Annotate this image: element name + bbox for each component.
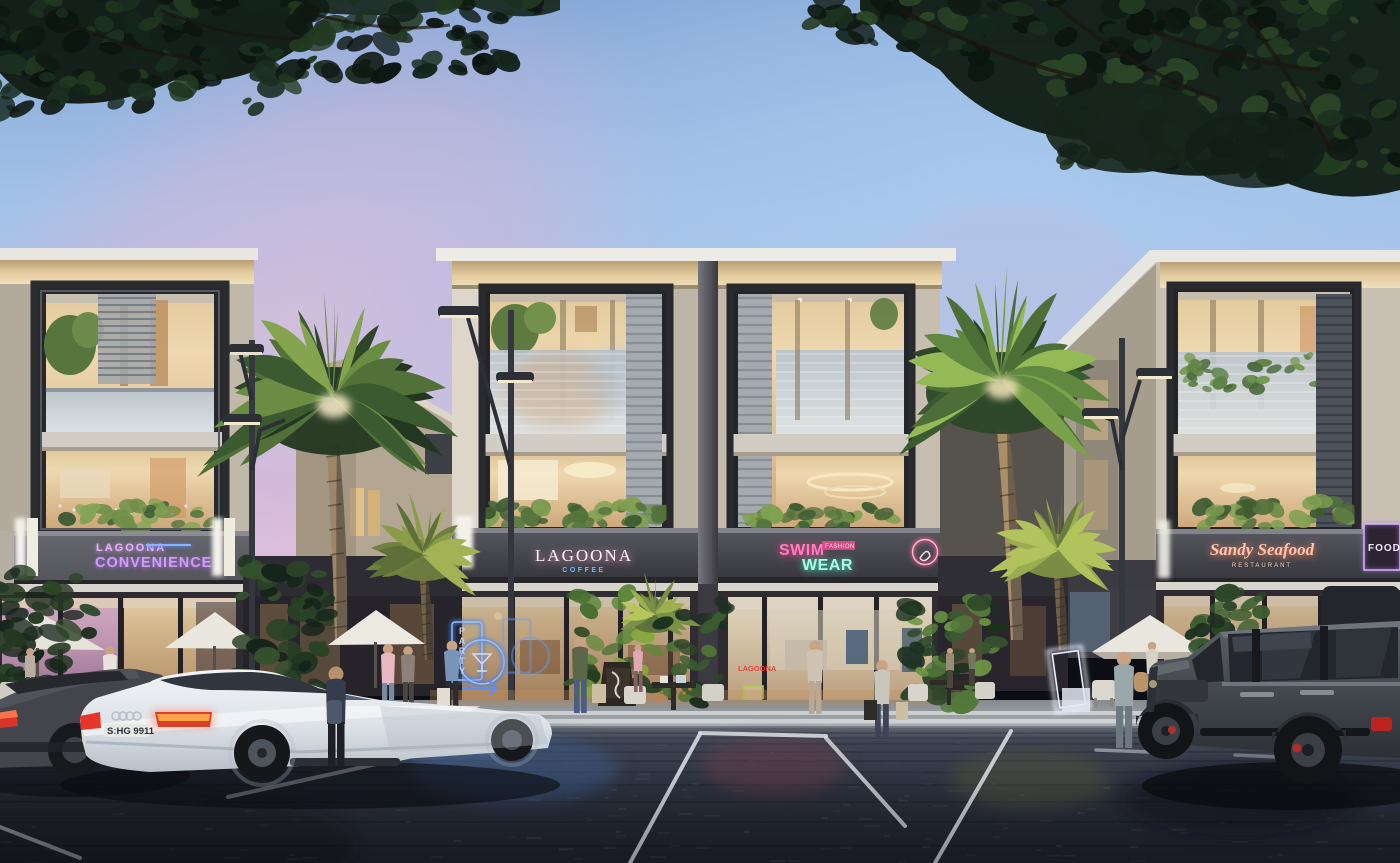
svg-text:FASHION: FASHION — [825, 544, 855, 550]
svg-text:Y: Y — [459, 666, 465, 676]
svg-text:S:HG 9911: S:HG 9911 — [107, 726, 155, 737]
svg-text:P: P — [459, 626, 465, 636]
svg-text:T: T — [459, 656, 465, 666]
svg-text:FOOD: FOOD — [1368, 543, 1400, 554]
svg-text:LAGOONA: LAGOONA — [96, 542, 166, 554]
svg-text:WEAR: WEAR — [802, 557, 853, 574]
svg-text:RESTAURANT: RESTAURANT — [1232, 563, 1292, 569]
svg-text:CONVENIENCE: CONVENIENCE — [95, 555, 212, 571]
svg-text:Sandy Seafood: Sandy Seafood — [1210, 540, 1315, 559]
svg-text:A: A — [459, 636, 466, 646]
svg-text:LAGOONA: LAGOONA — [535, 546, 633, 565]
svg-text:COFFEE: COFFEE — [562, 567, 605, 574]
